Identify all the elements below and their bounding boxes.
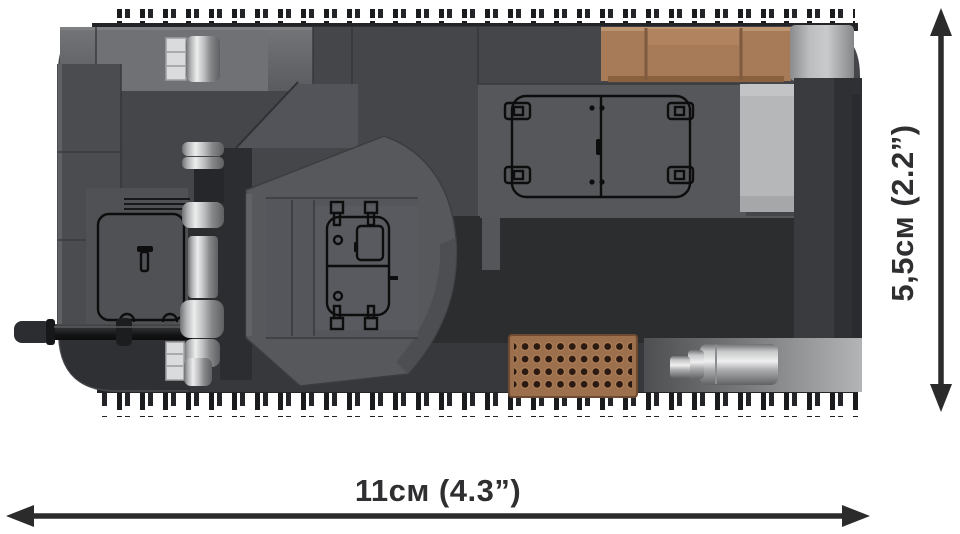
tank-top-view [14, 9, 862, 417]
rear-roll [790, 25, 854, 81]
height-dimension-label: 5,5см (2.2”) [885, 124, 920, 301]
height-dimension-arrow [930, 8, 952, 412]
headlight [166, 36, 220, 82]
rear-fender [644, 338, 862, 392]
width-dimension-arrow [6, 505, 870, 527]
engine-vent-grate [509, 335, 637, 397]
product-dimensions-image: 11см (4.3”) 5,5см (2.2”) [0, 0, 960, 534]
cargo-crates [601, 27, 791, 82]
engine-deck [478, 84, 746, 216]
driver-hatch [86, 188, 190, 332]
width-dimension-label: 11см (4.3”) [355, 473, 521, 508]
